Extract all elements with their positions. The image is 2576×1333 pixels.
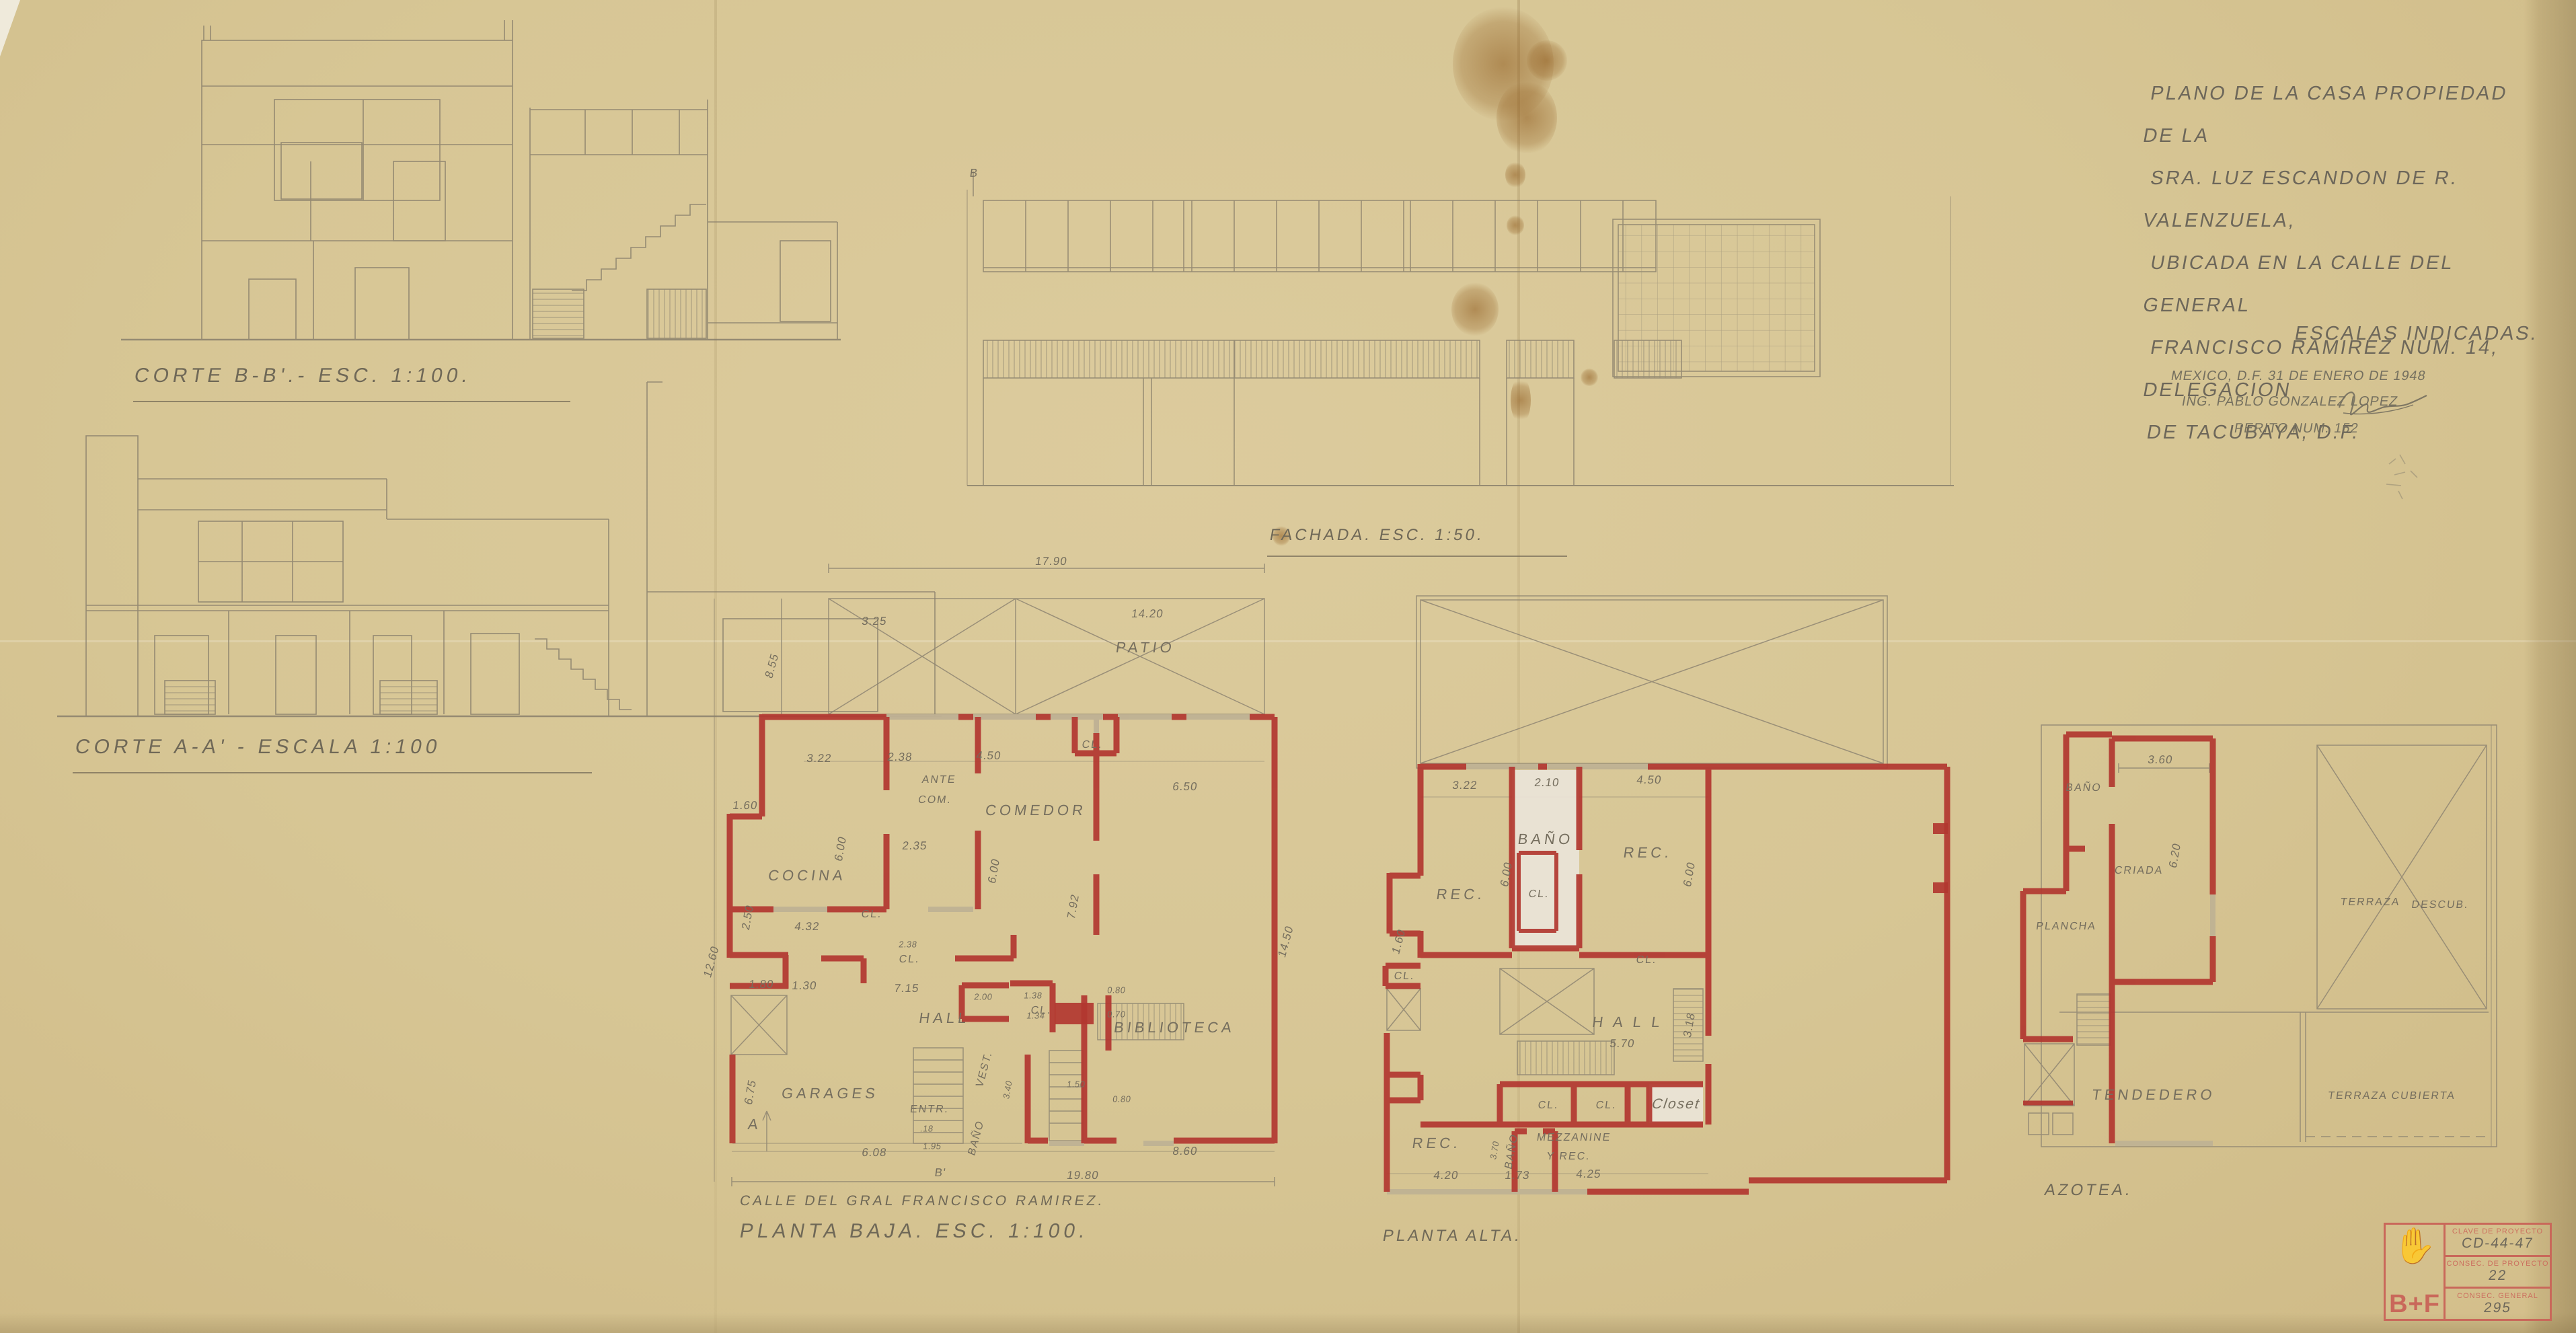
room-label: CRIADA <box>2114 865 2164 877</box>
room-label: CL. <box>1537 1100 1559 1112</box>
dimension-label: 3.25 <box>861 615 888 628</box>
dimension-label: 8.60 <box>1172 1145 1199 1158</box>
dimension-label: 1.50 <box>1066 1079 1086 1090</box>
dimension-label: 1.73 <box>1504 1169 1531 1182</box>
room-label: CL. <box>1081 739 1103 751</box>
dimension-label: 7.15 <box>893 982 920 995</box>
room-label: DESCUB. <box>2411 899 2470 911</box>
stamp-row-value: CD-44-47 <box>2460 1235 2534 1252</box>
stamp-row-label: CONSEC. GENERAL <box>2457 1292 2538 1300</box>
dimension-label: 4.50 <box>975 749 1002 763</box>
room-label: ANTE <box>921 774 956 786</box>
planta-alta-label: PLANTA ALTA. <box>1381 1227 1524 1246</box>
hand-icon: ✋ <box>2393 1227 2437 1265</box>
room-label: COCINA <box>767 867 847 884</box>
dimension-label: 5.70 <box>1609 1037 1636 1051</box>
room-label: A <box>747 1116 762 1133</box>
title-line: UBICADA EN LA CALLE DEL GENERAL <box>2139 242 2531 327</box>
dimension-label: 3.22 <box>1451 779 1478 792</box>
stamp-row: CLAVE DE PROYECTOCD-44-47 <box>2446 1225 2550 1257</box>
room-label: CL. <box>898 954 920 966</box>
stamp-row-value: 22 <box>2487 1268 2508 1284</box>
room-label: COM. <box>917 794 952 806</box>
dimension-label: 4.50 <box>1636 773 1663 787</box>
room-label: REC. <box>1622 844 1673 862</box>
room-label: MEZZANINE <box>1536 1132 1612 1144</box>
room-label: CL. <box>1635 954 1657 966</box>
dimension-label: 4.20 <box>1433 1169 1460 1182</box>
pencil-scribble <box>2386 455 2417 499</box>
room-label: COMEDOR <box>984 802 1088 819</box>
room-label: REC. <box>1411 1135 1462 1152</box>
perito-line: PERITO NUM. 152 <box>2233 421 2360 436</box>
dimension-label: 0.70 <box>1106 1010 1126 1020</box>
fireplace-block <box>1055 1003 1094 1024</box>
stamp-row-label: CONSEC. DE PROYECTO <box>2446 1260 2548 1268</box>
room-label: CL. <box>1527 888 1550 901</box>
dimension-label: B' <box>934 1166 946 1180</box>
room-label: H A L L <box>1591 1014 1665 1031</box>
room-label: BAÑO <box>1517 831 1575 848</box>
room-label: CL. <box>1393 970 1415 983</box>
dimension-label: 1.38 <box>1023 991 1043 1001</box>
corte-aa-drawing <box>57 382 942 716</box>
dimension-label: 2.38 <box>886 751 913 764</box>
dimension-label: 1.30 <box>791 979 818 993</box>
planta-baja-label: PLANTA BAJA. ESC. 1:100. <box>738 1220 1091 1243</box>
room-label: HALL <box>918 1010 971 1027</box>
dimension-label: 6.08 <box>861 1146 888 1159</box>
room-label: BIBLIOTECA <box>1112 1019 1236 1036</box>
room-label: TERRAZA CUBIERTA <box>2327 1090 2456 1102</box>
bathroom-white-fill <box>1512 770 1579 948</box>
dimension-label: 3.22 <box>806 752 833 765</box>
dimension-label: 2.10 <box>1533 776 1560 790</box>
engineer-line: ING. PABLO GONZALEZ LOPEZ <box>2181 394 2399 410</box>
corte-bb-underline <box>133 401 570 402</box>
corte-aa-underline <box>73 772 592 773</box>
dimension-label: 1.60 <box>732 799 759 812</box>
room-label: CL. <box>860 909 882 921</box>
dimension-label: 6.50 <box>1172 780 1199 794</box>
dimension-label: 1.80 <box>748 978 775 991</box>
fachada-drawing <box>967 172 1954 486</box>
dimension-label: 2.00 <box>973 992 993 1002</box>
room-label: ENTR. <box>909 1104 950 1116</box>
room-label: TERRAZA <box>2339 897 2400 909</box>
azotea-label: AZOTEA. <box>2043 1181 2135 1200</box>
room-label: PATIO <box>1114 639 1176 656</box>
title-line: PLANO DE LA CASA PROPIEDAD DE LA <box>2139 73 2531 157</box>
scale-note: ESCALAS INDICADAS. <box>2293 323 2540 345</box>
stamp-rows: CLAVE DE PROYECTOCD-44-47CONSEC. DE PROY… <box>2446 1225 2550 1319</box>
fachada-underline <box>1267 556 1567 557</box>
dimension-label: 4.25 <box>1575 1168 1602 1181</box>
dimension-label: 2.35 <box>901 839 928 853</box>
blueprint-sheet: CORTE B-B'.- ESC. 1:100. CORTE A-A' - ES… <box>0 0 2576 1333</box>
stamp-row: CONSEC. GENERAL295 <box>2446 1289 2550 1319</box>
room-label: Y REC. <box>1546 1151 1591 1163</box>
dimension-label: .18 <box>919 1124 934 1134</box>
dimension-label: 0.80 <box>1112 1094 1131 1104</box>
dimension-label: 1.34 <box>1026 1011 1045 1021</box>
room-label: BAÑO <box>2065 782 2103 794</box>
room-label: PLANCHA <box>2035 921 2097 933</box>
dimension-label: 1.95 <box>922 1141 942 1151</box>
corte-aa-label: CORTE A-A' - ESCALA 1:100 <box>73 736 443 759</box>
stamp-row-value: 295 <box>2483 1300 2512 1316</box>
fachada-label: FACHADA. ESC. 1:50. <box>1268 526 1486 545</box>
stamp-row: CONSEC. DE PROYECTO22 <box>2446 1257 2550 1289</box>
dimension-label: 19.80 <box>1066 1169 1100 1182</box>
corte-bb-label: CORTE B-B'.- ESC. 1:100. <box>132 365 473 387</box>
room-label: CL. <box>1595 1100 1617 1112</box>
dimension-label: 2.38 <box>898 940 917 950</box>
dimension-label: 14.20 <box>1131 607 1164 621</box>
bf-logo: B+F <box>2389 1292 2440 1316</box>
dimension-label: 4.32 <box>794 920 821 934</box>
date-line: MEXICO, D.F. 31 DE ENERO DE 1948 <box>2170 369 2427 384</box>
room-label: GARAGES <box>780 1085 879 1102</box>
approval-stamp: ✋ B+F CLAVE DE PROYECTOCD-44-47CONSEC. D… <box>2384 1223 2552 1321</box>
room-label: TENDEDERO <box>2091 1086 2217 1104</box>
street-label: CALLE DEL GRAL FRANCISCO RAMIREZ. <box>738 1193 1106 1209</box>
title-line: SRA. LUZ ESCANDON DE R. VALENZUELA, <box>2139 157 2531 242</box>
dimension-label: 3.60 <box>2147 753 2174 767</box>
dimension-label: 17.90 <box>1034 555 1068 568</box>
dimension-label: 0.80 <box>1106 985 1126 995</box>
corte-bb-drawing <box>121 20 841 340</box>
room-label: REC. <box>1435 886 1486 903</box>
room-label: Closet <box>1651 1096 1702 1112</box>
stamp-row-label: CLAVE DE PROYECTO <box>2452 1227 2543 1235</box>
